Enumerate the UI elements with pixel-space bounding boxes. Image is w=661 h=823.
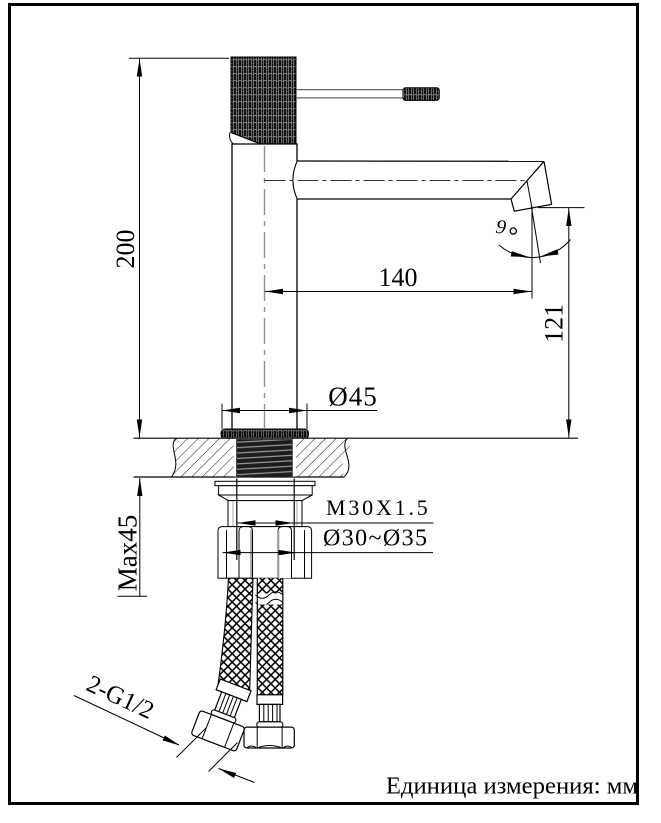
svg-text:Единица измерения: мм: Единица измерения: мм xyxy=(386,773,639,800)
svg-text:200: 200 xyxy=(111,230,140,269)
svg-text:Ø45: Ø45 xyxy=(328,382,378,412)
svg-text:Max45: Max45 xyxy=(113,515,143,592)
svg-text:Ø30~Ø35: Ø30~Ø35 xyxy=(323,526,428,552)
svg-text:M30X1.5: M30X1.5 xyxy=(326,495,431,520)
svg-text:140: 140 xyxy=(379,263,418,292)
svg-text:121: 121 xyxy=(540,304,569,343)
